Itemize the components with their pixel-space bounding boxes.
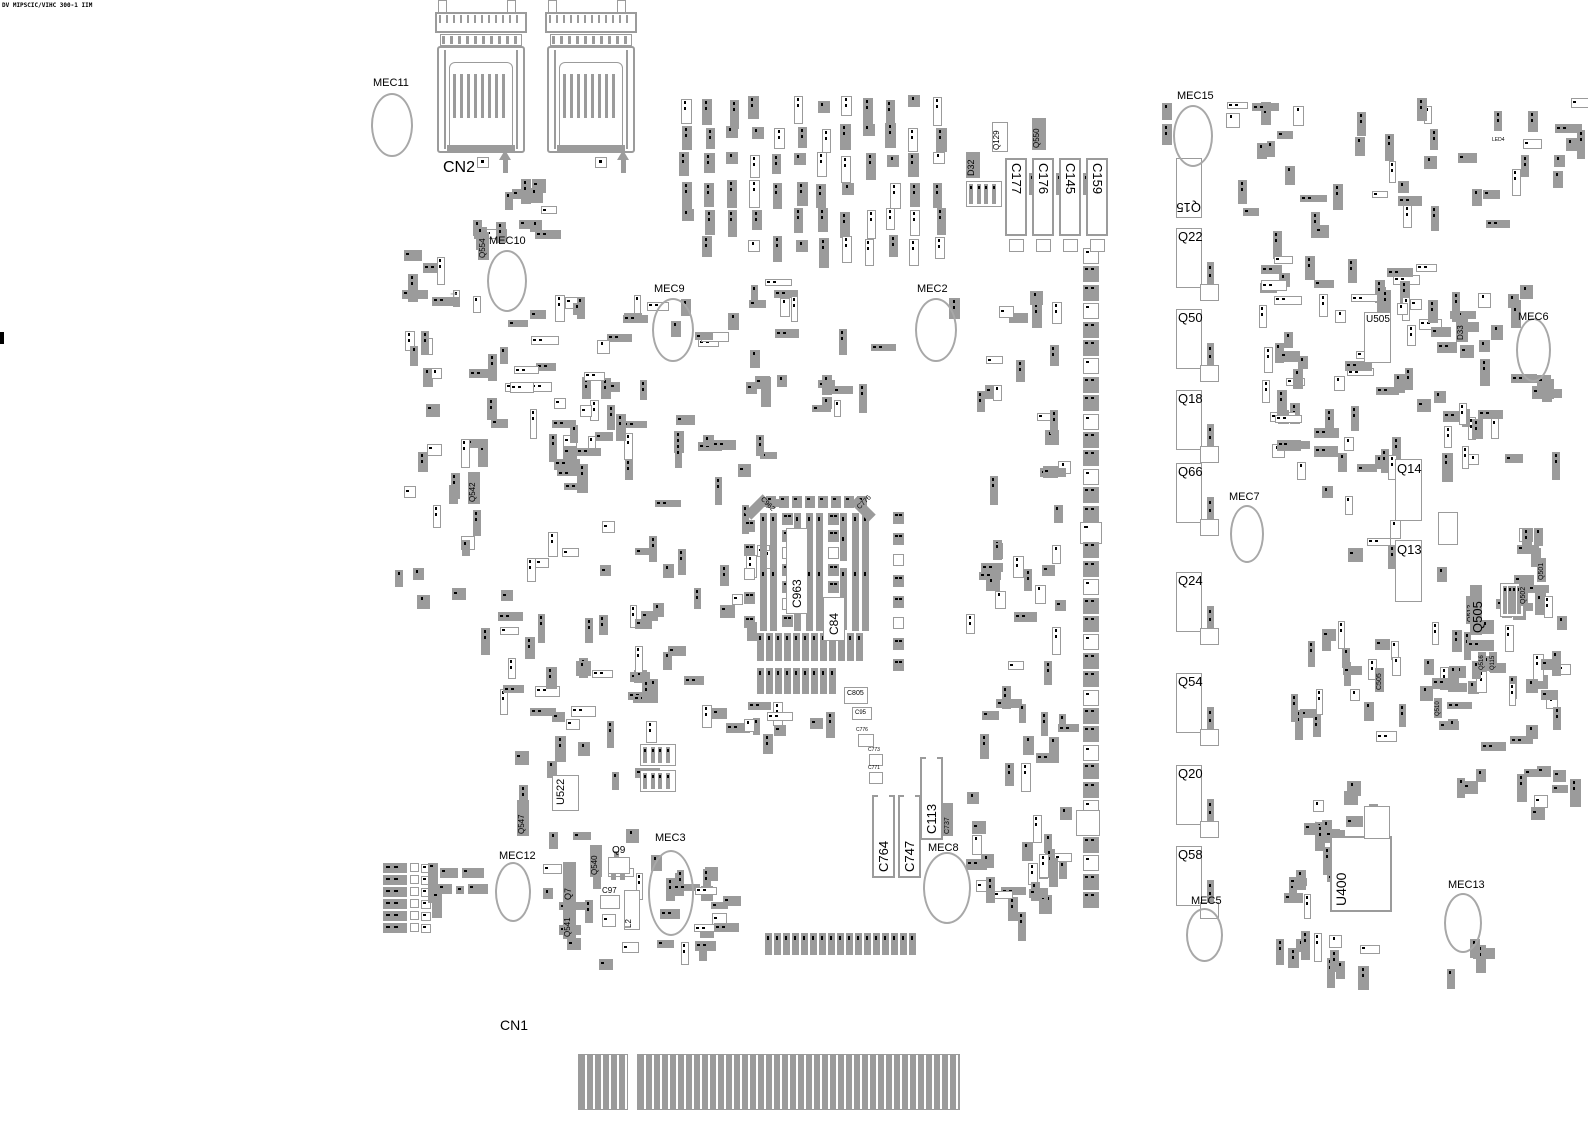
label-mark bbox=[1420, 106, 1422, 109]
label-mark bbox=[1465, 785, 1468, 787]
label-mark bbox=[619, 422, 621, 425]
component bbox=[543, 888, 554, 899]
label-mark bbox=[705, 871, 707, 874]
label-mark bbox=[659, 775, 661, 778]
label-mark bbox=[600, 672, 603, 674]
label-mark bbox=[807, 498, 810, 500]
component bbox=[1420, 686, 1433, 701]
label-mark bbox=[834, 515, 837, 517]
label-mark bbox=[544, 365, 547, 367]
label-mark bbox=[1047, 669, 1049, 672]
label-mark bbox=[1209, 266, 1211, 269]
component-label: C159 bbox=[1091, 163, 1104, 194]
component bbox=[738, 464, 751, 477]
label-mark bbox=[581, 663, 583, 666]
component bbox=[744, 568, 755, 580]
label-mark bbox=[830, 515, 833, 517]
label-mark bbox=[709, 136, 711, 139]
label-mark bbox=[652, 749, 654, 752]
component-outline bbox=[600, 895, 620, 909]
resistor bbox=[383, 923, 407, 933]
component bbox=[487, 398, 497, 419]
label-mark bbox=[936, 105, 938, 108]
label-mark bbox=[819, 186, 821, 189]
label-mark bbox=[659, 749, 661, 752]
component bbox=[1531, 807, 1546, 820]
label-mark bbox=[1401, 183, 1403, 186]
label-mark bbox=[1524, 163, 1526, 166]
component bbox=[576, 661, 590, 676]
label-mark bbox=[938, 245, 940, 248]
label-mark bbox=[1434, 681, 1437, 683]
label-mark bbox=[1008, 765, 1010, 768]
label-mark bbox=[1439, 345, 1442, 347]
label-mark bbox=[1061, 863, 1063, 866]
label-mark bbox=[678, 418, 681, 420]
component bbox=[1508, 294, 1519, 308]
label-mark bbox=[1091, 397, 1094, 399]
label-mark bbox=[1485, 192, 1488, 194]
component-label: L2 bbox=[625, 919, 633, 928]
label-mark bbox=[510, 666, 512, 669]
label-mark bbox=[1091, 839, 1094, 841]
component bbox=[1417, 399, 1432, 412]
resistor bbox=[383, 887, 407, 897]
component bbox=[1554, 155, 1564, 167]
label-mark bbox=[597, 435, 600, 437]
label-mark bbox=[762, 572, 764, 576]
label-mark bbox=[579, 299, 581, 302]
label-mark bbox=[797, 104, 799, 107]
label-mark bbox=[1053, 418, 1055, 421]
label-mark bbox=[869, 155, 871, 158]
label-mark bbox=[781, 498, 784, 500]
component bbox=[993, 543, 1003, 560]
label-mark bbox=[1055, 304, 1057, 307]
label-mark bbox=[831, 671, 833, 675]
component bbox=[1305, 256, 1315, 280]
fiducial-ellipse bbox=[915, 298, 957, 362]
label-mark bbox=[543, 689, 546, 691]
label-mark bbox=[1245, 210, 1248, 212]
label-mark bbox=[797, 216, 799, 219]
fiducial-label: MEC11 bbox=[373, 78, 409, 89]
label-mark bbox=[1269, 284, 1272, 286]
label-mark bbox=[1341, 455, 1343, 458]
label-mark bbox=[588, 620, 590, 623]
fiducial-label: MEC8 bbox=[928, 843, 959, 854]
label-mark bbox=[604, 386, 606, 389]
label-mark bbox=[843, 126, 845, 129]
label-mark bbox=[1460, 156, 1463, 158]
label-mark bbox=[1395, 439, 1397, 442]
label-mark bbox=[1304, 933, 1306, 936]
component bbox=[1334, 376, 1345, 390]
label-mark bbox=[939, 130, 941, 133]
label-mark bbox=[1471, 683, 1473, 686]
fiducial-ellipse bbox=[923, 852, 971, 924]
label-mark bbox=[1418, 266, 1421, 268]
label-mark bbox=[1235, 104, 1238, 106]
label-mark bbox=[1091, 710, 1094, 712]
label-mark bbox=[1460, 780, 1462, 783]
label-mark bbox=[684, 101, 686, 104]
label-mark bbox=[1475, 427, 1477, 430]
label-mark bbox=[425, 266, 428, 268]
label-mark bbox=[939, 210, 941, 213]
label-mark bbox=[510, 322, 513, 324]
label-mark bbox=[502, 349, 504, 352]
label-mark bbox=[1209, 610, 1211, 613]
label-mark bbox=[1455, 704, 1458, 706]
label-mark bbox=[751, 98, 753, 101]
label-mark bbox=[1241, 188, 1243, 191]
label-mark bbox=[884, 936, 886, 940]
component bbox=[744, 719, 754, 732]
label-mark bbox=[1310, 643, 1312, 646]
label-mark bbox=[1291, 880, 1294, 882]
label-mark bbox=[1317, 229, 1320, 231]
component-outline bbox=[1200, 729, 1219, 746]
label-mark bbox=[1322, 431, 1325, 433]
label-mark bbox=[985, 186, 987, 189]
label-mark bbox=[775, 156, 777, 159]
label-mark bbox=[1348, 820, 1351, 822]
plus-mark: + bbox=[1312, 818, 1320, 831]
component bbox=[1039, 854, 1049, 879]
label-mark bbox=[1086, 361, 1089, 363]
label-mark bbox=[795, 671, 797, 675]
label-mark bbox=[776, 936, 778, 940]
fiducial-label: MEC7 bbox=[1229, 492, 1260, 503]
label-mark bbox=[788, 617, 791, 619]
label-mark bbox=[1507, 627, 1509, 630]
label-mark bbox=[463, 441, 465, 444]
label-mark bbox=[549, 675, 551, 678]
label-mark bbox=[1019, 368, 1021, 371]
label-mark bbox=[1209, 811, 1211, 814]
label-mark bbox=[1573, 787, 1575, 790]
label-mark bbox=[1031, 871, 1033, 874]
label-mark bbox=[936, 191, 938, 194]
label-mark bbox=[705, 107, 707, 110]
label-mark bbox=[1391, 547, 1393, 550]
pin1-marker-icon bbox=[499, 150, 511, 160]
label-mark bbox=[753, 287, 755, 290]
component bbox=[702, 236, 712, 257]
label-mark bbox=[1091, 673, 1094, 675]
label-mark bbox=[753, 163, 755, 166]
label-mark bbox=[594, 672, 597, 674]
label-mark bbox=[1086, 306, 1089, 308]
label-mark bbox=[1516, 578, 1519, 580]
label-mark bbox=[893, 936, 895, 940]
label-mark bbox=[1229, 104, 1232, 106]
label-mark bbox=[1287, 334, 1289, 337]
component-label: C747 bbox=[903, 841, 916, 872]
component-label: Q58 bbox=[1178, 848, 1203, 861]
component bbox=[822, 375, 833, 395]
label-mark bbox=[1085, 728, 1088, 730]
label-mark bbox=[730, 182, 732, 185]
label-mark bbox=[1347, 364, 1350, 366]
component bbox=[774, 128, 785, 149]
label-mark bbox=[1027, 577, 1029, 580]
component-label: Q505 bbox=[1471, 601, 1484, 633]
component-outline bbox=[1364, 806, 1390, 839]
label-mark bbox=[1472, 456, 1474, 459]
component bbox=[1557, 616, 1567, 630]
label-mark bbox=[1085, 673, 1088, 675]
label-mark bbox=[775, 185, 777, 188]
component-label: C776 bbox=[856, 728, 868, 733]
label-mark bbox=[1340, 629, 1342, 632]
label-mark bbox=[477, 372, 480, 374]
component-label: C113 bbox=[925, 804, 938, 834]
component-label: C95 bbox=[855, 710, 866, 716]
label-mark bbox=[1039, 415, 1042, 417]
label-mark bbox=[705, 244, 707, 247]
label-mark bbox=[416, 570, 418, 573]
label-mark bbox=[989, 885, 991, 888]
label-mark bbox=[1455, 300, 1457, 303]
label-mark bbox=[423, 926, 426, 928]
label-mark bbox=[1325, 822, 1327, 825]
label-mark bbox=[1345, 669, 1348, 671]
label-mark bbox=[888, 102, 890, 105]
label-mark bbox=[590, 438, 592, 441]
component bbox=[1541, 659, 1559, 670]
component-label: C764 bbox=[877, 841, 890, 872]
label-mark bbox=[1391, 457, 1393, 460]
label-mark bbox=[545, 867, 548, 869]
label-mark bbox=[843, 214, 845, 217]
label-mark bbox=[912, 241, 914, 244]
component-outline bbox=[869, 772, 883, 784]
label-mark bbox=[558, 297, 560, 300]
label-mark bbox=[614, 774, 616, 777]
label-mark bbox=[1286, 896, 1289, 898]
label-mark bbox=[1488, 222, 1491, 224]
component bbox=[1397, 303, 1408, 315]
label-mark bbox=[1543, 662, 1546, 664]
label-mark bbox=[988, 359, 991, 361]
label-mark bbox=[835, 389, 838, 391]
label-mark bbox=[1431, 308, 1433, 311]
label-mark bbox=[1455, 632, 1457, 635]
label-mark bbox=[849, 636, 851, 640]
label-mark bbox=[604, 380, 606, 383]
label-mark bbox=[552, 834, 554, 837]
label-mark bbox=[499, 224, 501, 227]
label-mark bbox=[1514, 308, 1516, 311]
label-mark bbox=[464, 542, 466, 545]
label-mark bbox=[1296, 371, 1298, 374]
label-mark bbox=[566, 485, 569, 487]
label-mark bbox=[1085, 287, 1088, 289]
label-mark bbox=[1085, 563, 1088, 565]
label-mark bbox=[842, 517, 844, 521]
component-label: C177 bbox=[1010, 163, 1023, 194]
label-mark bbox=[733, 108, 735, 111]
label-mark bbox=[683, 944, 685, 947]
label-mark bbox=[706, 437, 708, 440]
component-label: Q22 bbox=[1178, 230, 1203, 243]
label-mark bbox=[893, 191, 895, 194]
label-mark bbox=[777, 636, 779, 640]
label-mark bbox=[1086, 637, 1089, 639]
label-mark bbox=[532, 417, 534, 420]
label-mark bbox=[864, 572, 866, 576]
label-mark bbox=[755, 129, 757, 132]
component bbox=[935, 237, 945, 259]
label-mark bbox=[551, 540, 553, 543]
label-mark bbox=[1514, 171, 1516, 174]
label-mark bbox=[696, 590, 698, 593]
component bbox=[1355, 137, 1365, 155]
label-mark bbox=[776, 292, 779, 294]
label-mark bbox=[981, 574, 984, 576]
capacitor-foot bbox=[1090, 239, 1105, 252]
label-mark bbox=[755, 218, 757, 221]
label-mark bbox=[750, 618, 753, 620]
label-mark bbox=[740, 468, 743, 470]
label-mark bbox=[1085, 784, 1088, 786]
component bbox=[410, 899, 419, 908]
component bbox=[863, 124, 875, 136]
label-mark bbox=[801, 135, 803, 138]
label-mark bbox=[990, 579, 992, 582]
label-mark bbox=[1358, 139, 1360, 142]
label-mark bbox=[1284, 443, 1287, 445]
label-mark bbox=[1055, 635, 1057, 638]
label-mark bbox=[1339, 963, 1341, 966]
label-mark bbox=[534, 222, 536, 225]
label-mark bbox=[564, 551, 567, 553]
component bbox=[404, 486, 416, 498]
label-mark bbox=[1410, 327, 1412, 330]
component bbox=[1364, 702, 1375, 720]
component bbox=[431, 368, 442, 380]
label-mark bbox=[386, 902, 390, 904]
component bbox=[1030, 291, 1044, 305]
label-mark bbox=[1573, 101, 1576, 103]
label-mark bbox=[652, 538, 654, 541]
label-mark bbox=[1091, 324, 1094, 326]
label-mark bbox=[1497, 113, 1499, 116]
label-mark bbox=[1345, 650, 1347, 653]
label-mark bbox=[814, 407, 817, 409]
label-mark bbox=[794, 936, 796, 940]
label-mark bbox=[1052, 739, 1054, 742]
label-mark bbox=[666, 654, 668, 657]
component bbox=[1437, 567, 1447, 582]
label-mark bbox=[1027, 738, 1029, 741]
label-mark bbox=[1055, 547, 1057, 550]
label-mark bbox=[820, 154, 822, 157]
component bbox=[986, 577, 1000, 591]
label-mark bbox=[697, 335, 700, 337]
label-mark bbox=[786, 671, 788, 675]
label-mark bbox=[1086, 251, 1089, 253]
label-mark bbox=[866, 936, 868, 940]
label-mark bbox=[1322, 449, 1325, 451]
component-label: Q510 bbox=[1435, 701, 1441, 716]
label-mark bbox=[821, 216, 823, 219]
component bbox=[1520, 285, 1534, 299]
label-mark bbox=[1091, 508, 1094, 510]
label-mark bbox=[1437, 393, 1439, 396]
label-mark bbox=[627, 467, 629, 470]
component bbox=[1442, 453, 1453, 482]
label-mark bbox=[1091, 655, 1094, 657]
label-mark bbox=[1412, 302, 1415, 304]
label-mark bbox=[1066, 727, 1069, 729]
label-mark bbox=[435, 507, 437, 510]
label-mark bbox=[637, 648, 639, 651]
label-mark bbox=[1019, 362, 1021, 365]
label-mark bbox=[1043, 714, 1045, 717]
label-mark bbox=[1052, 347, 1054, 350]
label-mark bbox=[1055, 629, 1057, 632]
label-mark bbox=[552, 442, 554, 445]
component bbox=[1322, 629, 1336, 641]
component bbox=[1553, 770, 1566, 782]
label-mark bbox=[1554, 787, 1557, 789]
label-mark bbox=[551, 534, 553, 537]
component bbox=[609, 382, 620, 392]
label-mark bbox=[632, 613, 634, 616]
component bbox=[578, 742, 590, 757]
label-mark bbox=[1209, 501, 1211, 504]
component-label: Q54 bbox=[1178, 675, 1203, 688]
component bbox=[819, 238, 829, 267]
label-mark bbox=[585, 385, 587, 388]
label-mark bbox=[1314, 220, 1316, 223]
label-mark bbox=[1393, 522, 1395, 525]
component bbox=[750, 155, 760, 178]
label-mark bbox=[937, 154, 939, 157]
label-mark bbox=[867, 241, 869, 244]
label-mark bbox=[751, 302, 754, 304]
label-mark bbox=[1486, 412, 1489, 414]
label-mark bbox=[649, 304, 652, 306]
label-mark bbox=[846, 498, 849, 500]
component bbox=[563, 446, 577, 459]
component-label: Q13 bbox=[1397, 543, 1422, 556]
label-mark bbox=[1555, 460, 1557, 463]
component bbox=[626, 829, 640, 843]
label-mark bbox=[707, 155, 709, 158]
label-mark bbox=[1091, 379, 1094, 381]
label-mark bbox=[746, 594, 749, 596]
component bbox=[1028, 863, 1038, 885]
label-mark bbox=[517, 755, 520, 757]
label-mark bbox=[1024, 771, 1026, 774]
label-mark bbox=[1267, 355, 1269, 358]
label-mark bbox=[1360, 114, 1362, 117]
label-mark bbox=[1302, 197, 1305, 199]
label-mark bbox=[697, 944, 700, 946]
label-mark bbox=[1328, 411, 1330, 414]
label-mark bbox=[867, 247, 869, 250]
label-mark bbox=[1316, 935, 1318, 938]
label-mark bbox=[705, 101, 707, 104]
component bbox=[682, 126, 693, 150]
label-mark bbox=[1280, 398, 1282, 401]
component bbox=[890, 183, 901, 209]
component-label: D33 bbox=[1457, 325, 1465, 340]
